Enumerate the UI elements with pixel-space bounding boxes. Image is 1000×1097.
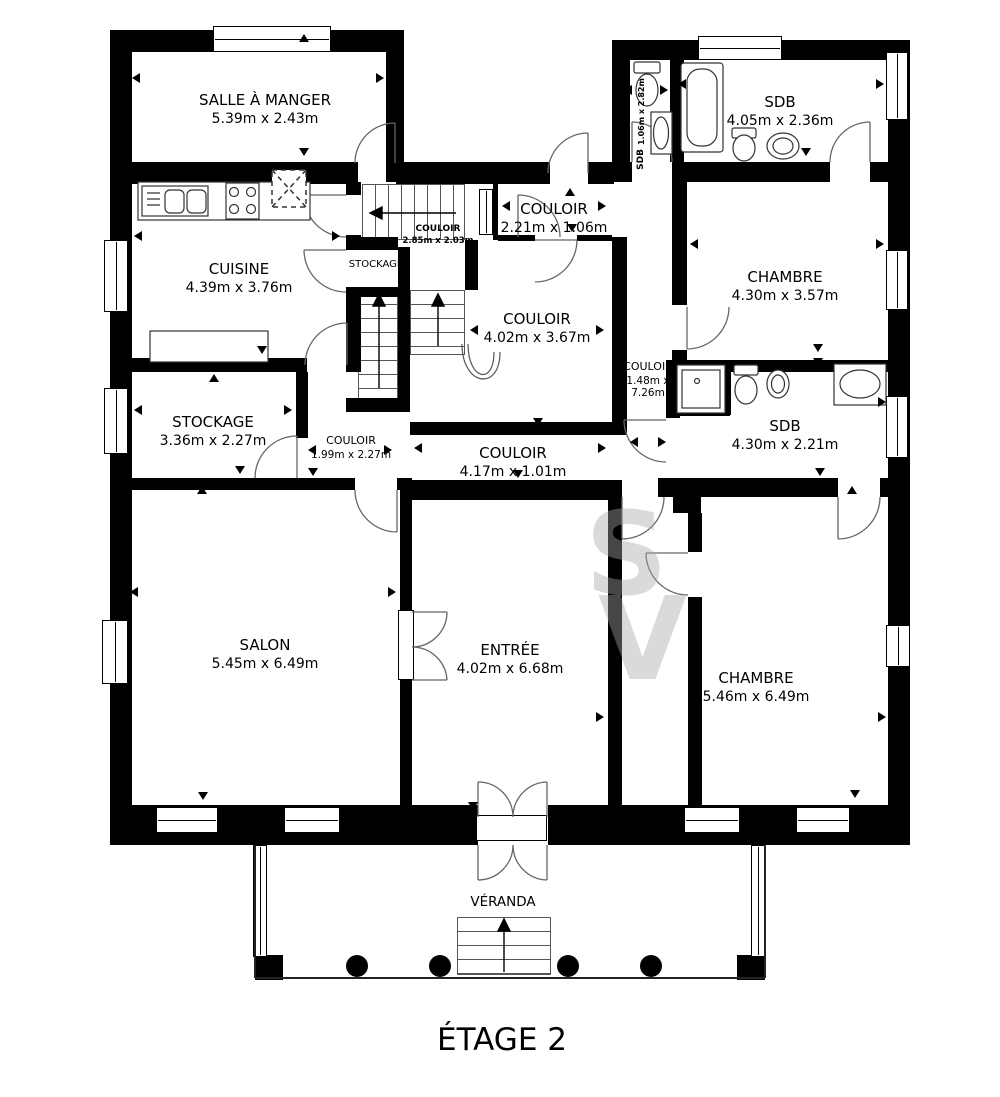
floor-plan: SALLE À MANGER 5.39m x 2.43m SDB 4.05m x… — [0, 0, 1000, 1097]
door-arc-chambre-top — [687, 307, 729, 349]
dimension-tick — [847, 486, 857, 494]
dimension-tick — [678, 79, 686, 89]
wall — [465, 240, 478, 290]
wall — [400, 680, 412, 808]
room-label-couloir-top: COULOIR 2.21m x 1.06m — [501, 200, 608, 237]
stove — [226, 183, 259, 219]
dimension-tick — [813, 344, 823, 352]
dimension-tick — [850, 790, 860, 798]
wall — [612, 237, 627, 435]
shower-drain — [695, 379, 700, 384]
dimension-tick — [299, 148, 309, 156]
door-arc-sdb-top — [830, 122, 870, 162]
door-panel — [398, 610, 414, 680]
room-label-couloir-small: COULOIR 2.85m x 2.03m — [402, 224, 473, 246]
wall — [398, 290, 410, 402]
wall — [493, 182, 498, 240]
room-label-chambre-top: CHAMBRE 4.30m x 3.57m — [732, 268, 839, 305]
window — [479, 189, 493, 235]
dimension-tick — [308, 468, 318, 476]
dimension-tick — [197, 486, 207, 494]
dimension-tick — [235, 466, 245, 474]
room-label-salon: SALON 5.45m x 6.49m — [212, 636, 319, 673]
dimension-tick — [198, 792, 208, 800]
bathtub-inner — [687, 69, 717, 146]
window — [684, 807, 740, 833]
kitchen-counter — [138, 182, 310, 220]
dimension-tick — [624, 85, 632, 95]
dimension-tick — [596, 712, 604, 722]
dimension-tick — [694, 712, 702, 722]
dimension-tick — [633, 44, 643, 52]
window — [886, 625, 910, 667]
door-arc-salon — [355, 490, 397, 532]
toilet-bowl-sdb-mid — [735, 376, 757, 404]
wall — [396, 162, 550, 184]
wc-sink-basin — [654, 117, 669, 149]
wall — [612, 162, 632, 182]
wall — [666, 360, 893, 372]
stair-handrail-curve — [462, 344, 500, 379]
bidet-sdb-top — [767, 133, 799, 159]
dimension-tick — [130, 587, 138, 597]
dimension-tick — [284, 405, 292, 415]
kitchen-sink — [142, 186, 208, 216]
dimension-tick — [134, 405, 142, 415]
wall — [110, 162, 358, 184]
dimension-tick — [332, 231, 340, 241]
watermark-letter: S — [585, 498, 668, 613]
dimension-tick — [813, 358, 823, 366]
salon-double-door-arcs — [412, 612, 447, 680]
door-arc-vestibule — [622, 497, 664, 539]
wall — [255, 955, 283, 980]
stove-burner — [247, 188, 256, 197]
wall — [346, 398, 410, 412]
wall — [410, 422, 612, 435]
room-label-veranda: VÉRANDA — [470, 894, 535, 910]
dimension-tick — [596, 325, 604, 335]
dimension-tick — [876, 239, 884, 249]
dimension-tick — [376, 73, 384, 83]
veranda-column — [557, 955, 579, 977]
window — [102, 620, 128, 684]
wall — [346, 182, 361, 195]
stove-burner — [247, 205, 256, 214]
room-label-salle-a-manger: SALLE À MANGER 5.39m x 2.43m — [199, 91, 331, 128]
kitchen-sink-basin-left — [165, 190, 184, 213]
room-label-couloir-mid: COULOIR 4.02m x 3.67m — [484, 310, 591, 347]
wall — [672, 350, 687, 360]
dimension-tick — [414, 443, 422, 453]
wc-toilet-tank — [634, 62, 660, 73]
wall — [346, 290, 361, 372]
door-arc-chambre-bottom — [646, 553, 688, 595]
veranda-steps — [457, 917, 551, 975]
sink-basin-sdb-mid — [840, 370, 880, 398]
room-label-couloir-199: COULOIR 1.99m x 2.27m — [311, 434, 391, 461]
dimension-tick — [781, 44, 791, 52]
wall — [670, 40, 684, 162]
wall — [688, 513, 702, 552]
kitchen-sink-drainer-lines — [147, 193, 160, 205]
window — [253, 845, 267, 957]
window — [156, 807, 218, 833]
room-label-stockage: STOCKAGE 3.36m x 2.27m — [160, 413, 267, 450]
window — [886, 250, 908, 310]
dimension-tick — [878, 712, 886, 722]
dimension-tick — [598, 443, 606, 453]
door-arc-cuisine-2 — [304, 250, 346, 292]
wc-sink-unit — [651, 112, 672, 154]
door-panel — [476, 815, 547, 841]
veranda-column — [346, 955, 368, 977]
door-arc-sdb-to-chambre — [838, 497, 880, 539]
shower-inner — [682, 370, 720, 408]
window — [886, 52, 908, 120]
dimension-tick — [533, 418, 543, 426]
window — [284, 807, 340, 833]
dimension-tick — [299, 34, 309, 42]
wall — [412, 480, 612, 500]
veranda-column — [429, 955, 451, 977]
window — [886, 396, 908, 458]
room-label-chambre-bottom: CHAMBRE 5.46m x 6.49m — [703, 669, 810, 706]
window — [104, 388, 128, 454]
dimension-tick — [690, 239, 698, 249]
wall — [870, 162, 910, 182]
room-label-couloir-417: COULOIR 4.17m x 1.01m — [460, 444, 567, 481]
dimension-tick — [658, 437, 666, 447]
room-label-couloir-vertical: COULOIR 1.48m x 7.26m — [619, 360, 677, 400]
dimension-tick — [209, 374, 219, 382]
wall — [880, 478, 910, 497]
room-label-entree: ENTRÉE 4.02m x 6.68m — [457, 641, 564, 678]
dimension-tick — [801, 148, 811, 156]
floor-title: ÉTAGE 2 — [437, 1022, 567, 1058]
room-label-stockage-small: STOCKAGE — [349, 259, 403, 272]
window — [751, 845, 765, 957]
kitchen-sink-basin-right — [187, 190, 206, 213]
staircase-right-flight — [410, 290, 465, 355]
wall — [588, 162, 614, 184]
wall — [608, 480, 622, 825]
dimension-tick — [876, 79, 884, 89]
window — [698, 36, 782, 60]
window — [104, 240, 128, 312]
dimension-tick — [630, 437, 638, 447]
wall — [737, 955, 765, 980]
stove-burner — [230, 205, 239, 214]
staircase-left-flight — [358, 290, 398, 400]
room-label-wc-top: SDB 1.06m x 2.82m — [636, 78, 646, 170]
door-arc-couloir-mid — [535, 240, 577, 282]
window — [213, 26, 331, 52]
toilet-bowl-sdb-top — [733, 135, 755, 161]
bidet-sdb-mid — [767, 370, 789, 398]
wall — [132, 358, 307, 372]
room-label-sdb-mid: SDB 4.30m x 2.21m — [732, 417, 839, 454]
shower — [677, 365, 725, 413]
dimension-tick — [470, 325, 478, 335]
dimension-tick — [660, 85, 668, 95]
wall — [688, 597, 702, 808]
dimension-tick — [467, 488, 477, 496]
dimension-tick — [815, 468, 825, 476]
door-arc-exterior-top — [548, 133, 588, 173]
wall — [386, 30, 404, 182]
bathtub — [681, 63, 723, 152]
wall — [658, 478, 838, 497]
dimension-tick — [134, 231, 142, 241]
wall — [132, 478, 355, 490]
bidet-sdb-mid-inner — [772, 375, 785, 393]
wall — [296, 372, 308, 438]
door-arc-cuisine-3 — [305, 323, 347, 365]
wall — [612, 40, 630, 162]
wall — [672, 162, 830, 182]
veranda-column — [640, 955, 662, 977]
wall — [400, 478, 412, 612]
room-label-cuisine: CUISINE 4.39m x 3.76m — [186, 260, 293, 297]
wall — [346, 237, 398, 250]
window — [796, 807, 850, 833]
room-label-sdb-top: SDB 4.05m x 2.36m — [727, 93, 834, 130]
dimension-tick — [388, 587, 396, 597]
wall — [666, 408, 730, 416]
wall — [672, 182, 687, 305]
stove-burner — [230, 188, 239, 197]
dimension-tick — [878, 397, 886, 407]
dimension-tick — [468, 802, 478, 810]
dimension-tick — [565, 188, 575, 196]
dimension-tick — [132, 73, 140, 83]
bidet-sdb-top-inner — [773, 138, 793, 154]
dimension-tick — [257, 346, 267, 354]
wall — [673, 497, 701, 513]
